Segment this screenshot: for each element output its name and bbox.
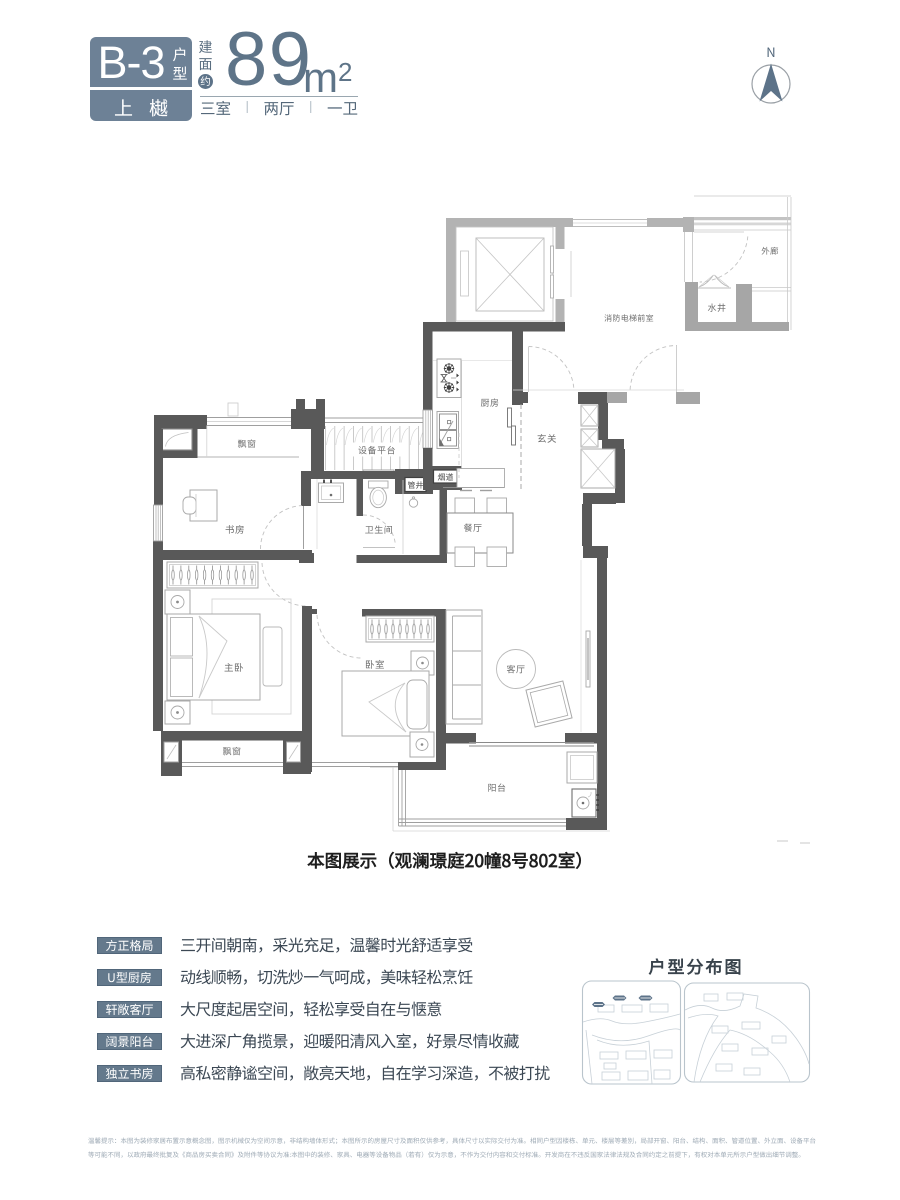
svg-text:卧室: 卧室 <box>365 657 385 671</box>
svg-text:书房: 书房 <box>225 522 245 536</box>
svg-text:飘窗: 飘窗 <box>237 437 256 450</box>
svg-text:客厅: 客厅 <box>506 663 525 676</box>
svg-text:烟道: 烟道 <box>438 472 454 483</box>
svg-text:阳台: 阳台 <box>487 781 506 794</box>
svg-text:玄关: 玄关 <box>537 431 557 445</box>
svg-text:主卧: 主卧 <box>224 660 244 674</box>
svg-text:飘窗: 飘窗 <box>222 745 241 758</box>
svg-text:水井: 水井 <box>707 301 726 314</box>
svg-text:消防电梯前室: 消防电梯前室 <box>604 313 654 324</box>
svg-text:餐厅: 餐厅 <box>463 521 482 534</box>
svg-text:厨房: 厨房 <box>480 396 499 409</box>
svg-text:N: N <box>766 42 775 61</box>
svg-text:卫生间: 卫生间 <box>365 523 394 536</box>
svg-text:设备平台: 设备平台 <box>358 444 396 457</box>
svg-text:外廊: 外廊 <box>761 245 779 257</box>
svg-text:管井: 管井 <box>408 480 424 491</box>
